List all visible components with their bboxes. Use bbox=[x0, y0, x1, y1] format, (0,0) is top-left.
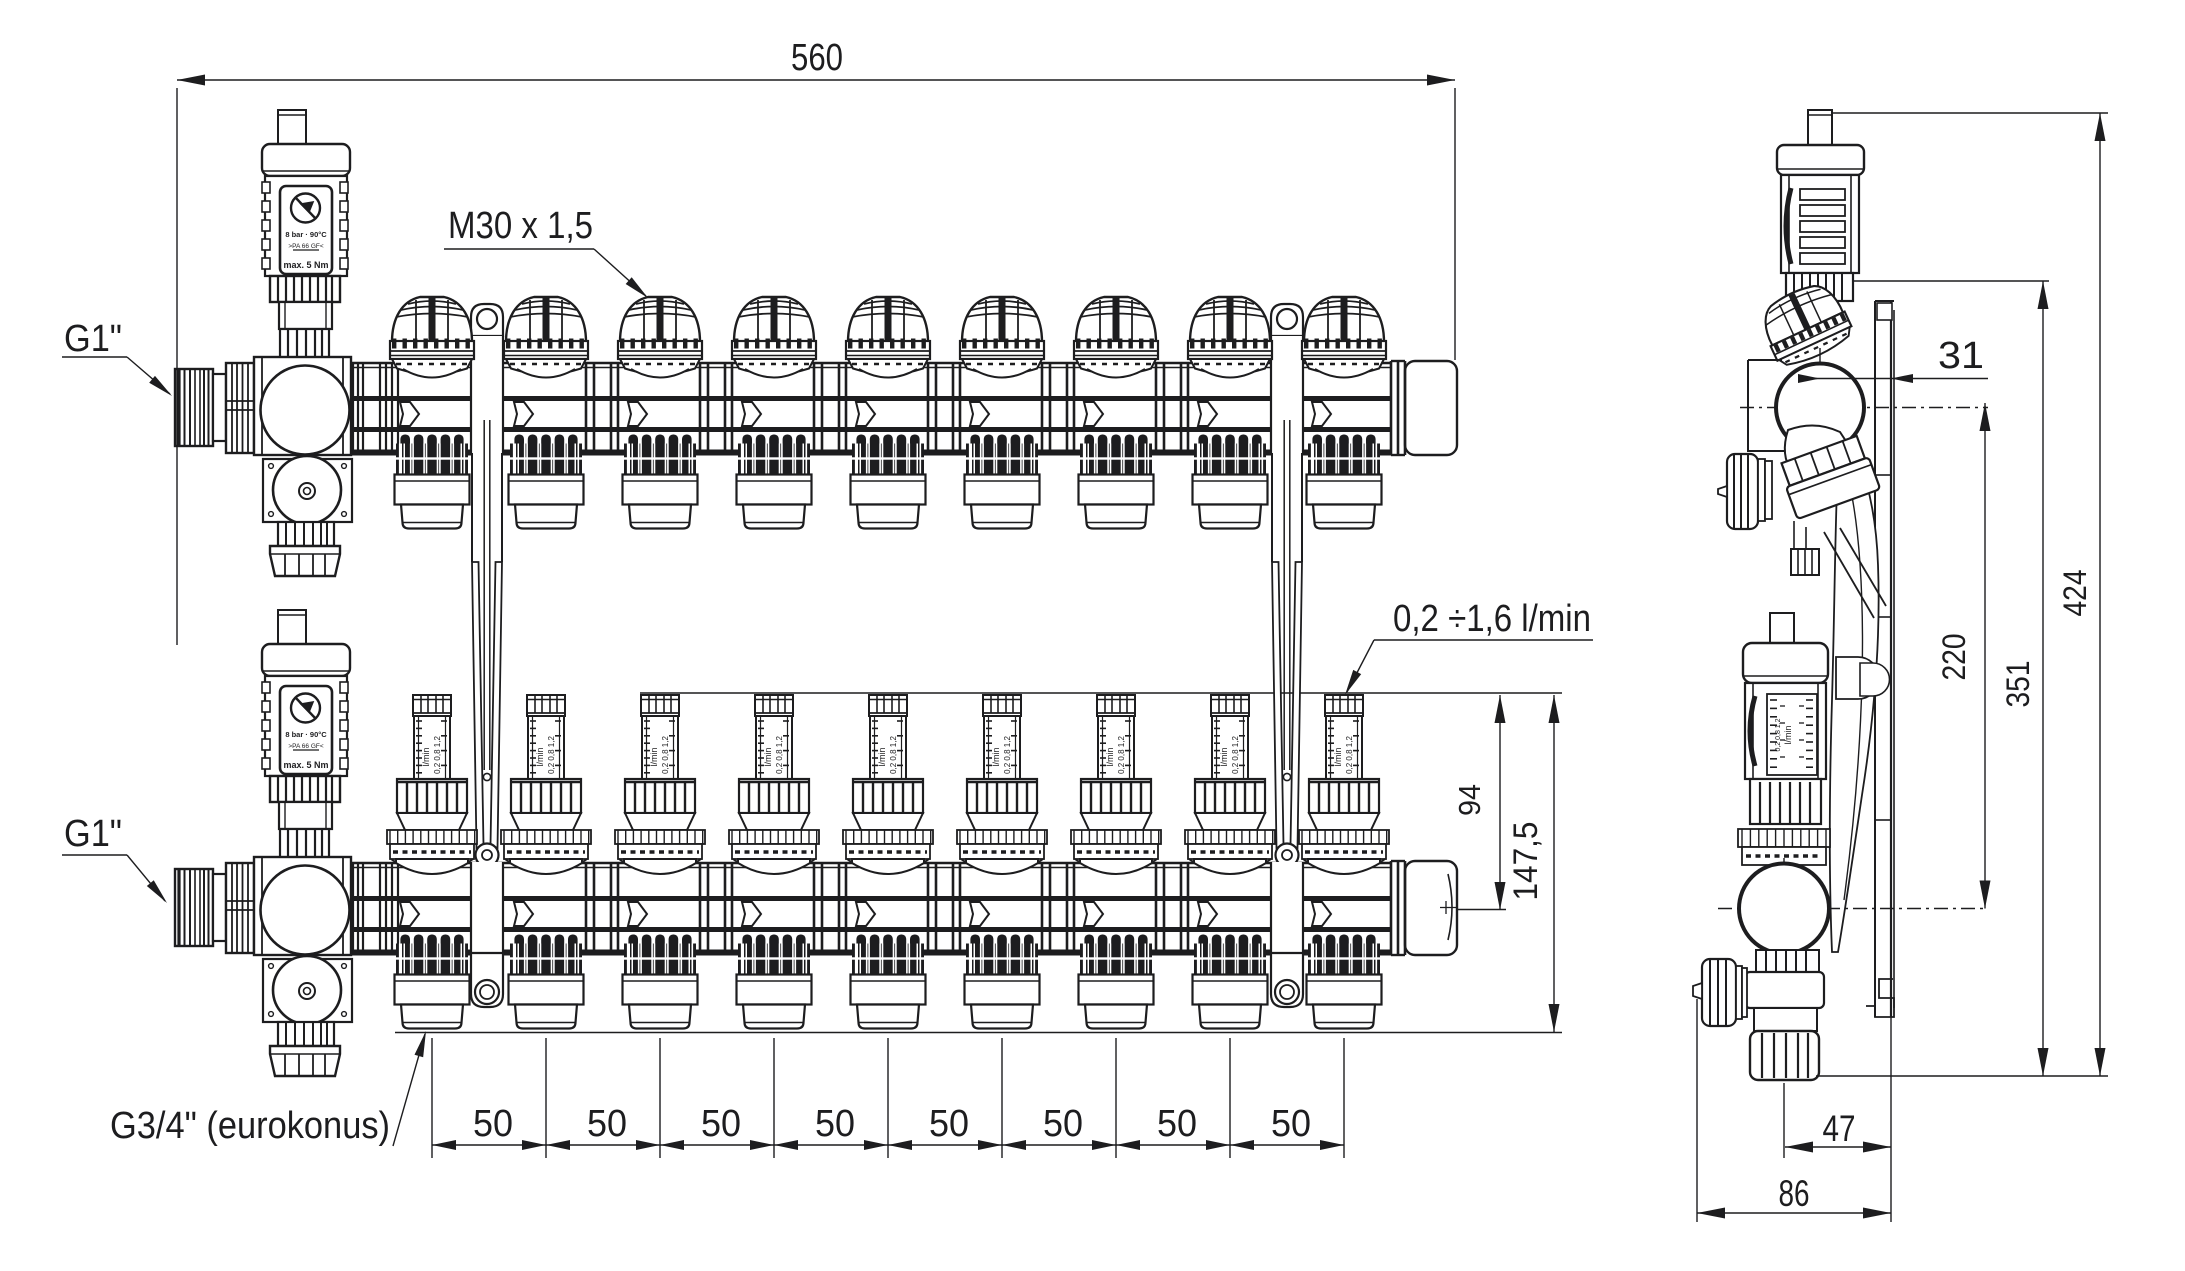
svg-text:50: 50 bbox=[1271, 1103, 1311, 1145]
svg-text:351: 351 bbox=[2000, 661, 2036, 708]
svg-text:560: 560 bbox=[791, 37, 843, 79]
svg-text:l/min: l/min bbox=[1783, 725, 1793, 744]
svg-text:G1": G1" bbox=[64, 318, 122, 360]
svg-text:31: 31 bbox=[1938, 335, 1984, 377]
svg-text:94: 94 bbox=[1452, 784, 1487, 816]
svg-text:50: 50 bbox=[473, 1103, 513, 1145]
svg-text:0,2 0,8 1,2: 0,2 0,8 1,2 bbox=[1775, 718, 1782, 751]
svg-text:0,2 ÷1,6 l/min: 0,2 ÷1,6 l/min bbox=[1393, 598, 1591, 640]
svg-text:147,5: 147,5 bbox=[1507, 822, 1545, 901]
svg-text:50: 50 bbox=[929, 1103, 969, 1145]
svg-text:47: 47 bbox=[1823, 1108, 1856, 1149]
svg-text:220: 220 bbox=[1936, 634, 1972, 681]
svg-text:50: 50 bbox=[815, 1103, 855, 1145]
svg-text:424: 424 bbox=[2057, 570, 2093, 617]
svg-text:G3/4" (eurokonus): G3/4" (eurokonus) bbox=[110, 1105, 390, 1147]
svg-text:50: 50 bbox=[1157, 1103, 1197, 1145]
svg-text:G1": G1" bbox=[64, 813, 122, 855]
svg-text:50: 50 bbox=[1043, 1103, 1083, 1145]
svg-text:M30 x 1,5: M30 x 1,5 bbox=[448, 205, 593, 247]
svg-text:50: 50 bbox=[587, 1103, 627, 1145]
svg-text:50: 50 bbox=[701, 1103, 741, 1145]
svg-text:86: 86 bbox=[1779, 1173, 1810, 1214]
